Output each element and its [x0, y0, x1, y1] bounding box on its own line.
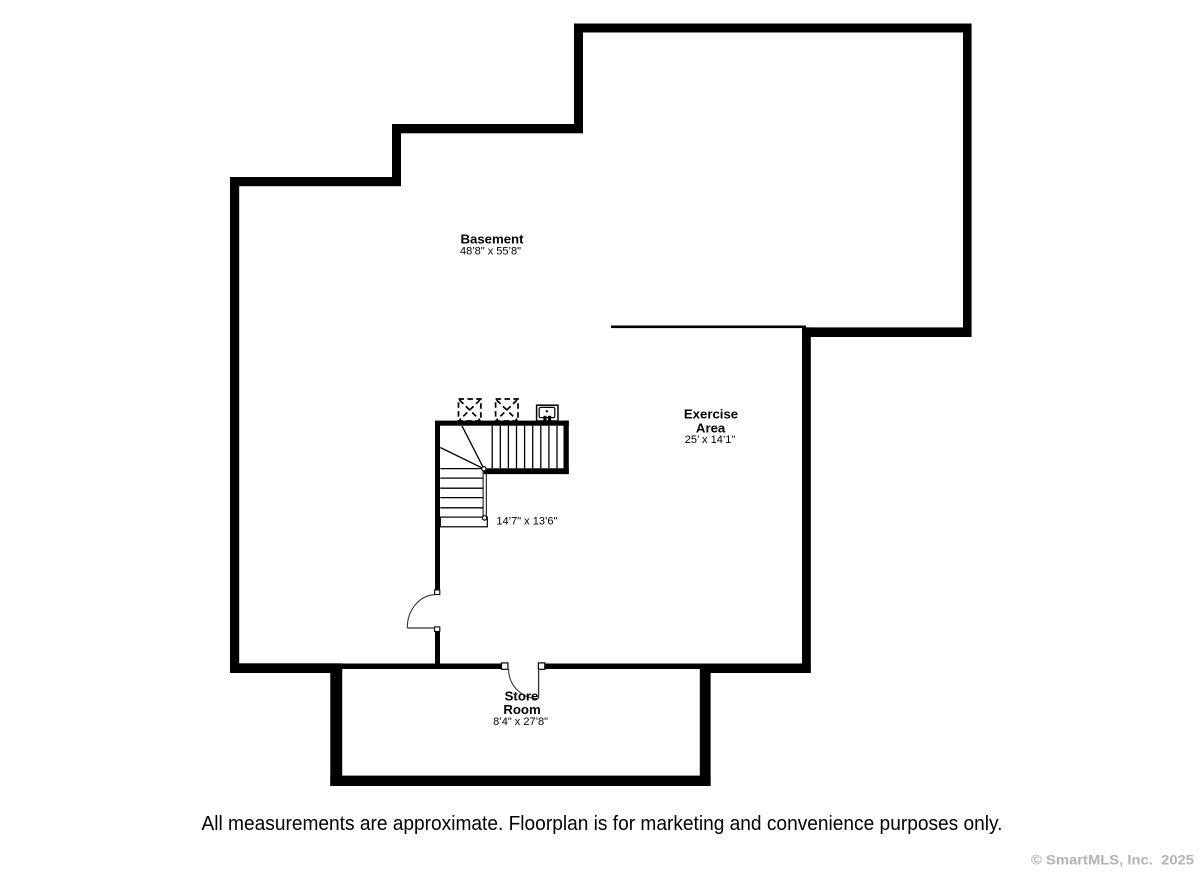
svg-text:Room: Room [503, 702, 540, 717]
svg-text:© SmartMLS, Inc. 2025: © SmartMLS, Inc. 2025 [1031, 851, 1194, 867]
svg-text:All measurements are approxima: All measurements are approximate. Floorp… [202, 813, 1003, 835]
svg-text:25’ x 14’1": 25’ x 14’1" [685, 434, 736, 446]
svg-text:8’4" x 27’8": 8’4" x 27’8" [493, 716, 548, 728]
svg-text:14’7" x 13’6": 14’7" x 13’6" [496, 515, 557, 527]
svg-text:48’8" x 55’8": 48’8" x 55’8" [460, 246, 521, 258]
svg-text:Exercise: Exercise [684, 407, 738, 422]
svg-text:Basement: Basement [460, 232, 524, 247]
